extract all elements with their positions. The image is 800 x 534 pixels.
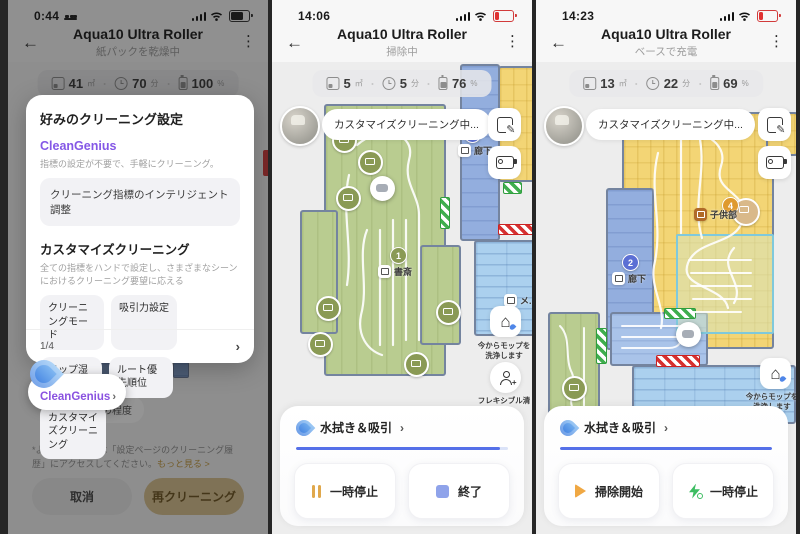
start-cleaning-button[interactable]: 掃除開始 [558, 463, 660, 519]
cleaning-stats: 13㎡ 22分 69% [569, 70, 763, 97]
cleangenius-chevron-icon: › [112, 391, 116, 403]
phone-cleaning: 2 廊下 1 書斎 メ... 14:06 ← Aqua10 Ultra [272, 0, 532, 534]
room-badge: 1 [390, 247, 407, 264]
pause-button[interactable]: 一時停止 [294, 463, 396, 519]
back-icon[interactable]: ← [550, 34, 567, 51]
selected-zone[interactable] [676, 234, 774, 334]
clock-time: 14:06 [298, 9, 330, 23]
clock-icon [383, 77, 396, 90]
cleangenius-description: 指標の設定が不要で、手軽にクリーニング。 [40, 157, 240, 170]
clock-icon [647, 77, 660, 90]
cleaning-status-banner[interactable]: カスタマイズクリーニング中... [586, 109, 755, 140]
cleaning-settings-dialog: 好みのクリーニング設定 CleanGenius 指標の設定が不要で、手軽にクリー… [26, 95, 254, 363]
cellular-icon [456, 12, 471, 21]
furniture-icon [562, 376, 587, 401]
battery-level-icon [710, 77, 719, 90]
custom-cleaning-description: 全ての指標をハンドで設定し、さまざまなシーンにおけるクリーニング要望に応える [40, 262, 240, 287]
dialog-title: 好みのクリーニング設定 [40, 109, 240, 128]
control-sheet: 水拭き＆吸引 › 掃除開始 一時停止 [544, 406, 788, 526]
avatar[interactable] [544, 106, 584, 146]
page-indicator: 1/4 [40, 341, 54, 352]
room-icon [458, 144, 471, 157]
room-label-kids: 子供部 [694, 208, 737, 221]
stat-battery: 69% [710, 76, 749, 91]
cellular-icon [720, 12, 735, 21]
stat-area: 5㎡ [326, 76, 362, 91]
camera-icon [766, 156, 784, 169]
battery-level-icon [439, 77, 448, 90]
avatar[interactable] [280, 106, 320, 146]
furniture-icon [316, 296, 341, 321]
area-icon [583, 77, 596, 90]
water-drop-icon [557, 416, 580, 439]
stat-time: 5分 [383, 76, 419, 91]
flexible-clean-button[interactable]: + [490, 362, 521, 393]
back-icon[interactable]: ← [286, 34, 303, 51]
camera-button[interactable] [488, 146, 521, 179]
pause-icon [312, 485, 321, 498]
mop-wash-button[interactable]: ⌂ [760, 358, 791, 389]
furniture-icon [336, 186, 361, 211]
stat-battery: 76% [439, 76, 478, 91]
action-buttons: 掃除開始 一時停止 [544, 450, 788, 519]
end-button[interactable]: 終了 [408, 463, 510, 519]
custom-cleaning-heading: カスタマイズクリーニング [40, 239, 240, 258]
play-icon [575, 484, 586, 498]
furniture-icon [308, 332, 333, 357]
room-icon [694, 208, 707, 221]
cleangenius-pill-label: CleanGenius [40, 391, 110, 403]
cleaning-status-banner[interactable]: カスタマイズクリーニング中... [322, 109, 491, 140]
intelligent-adjust-button[interactable]: クリーニング指標のインテリジェント調整 [40, 178, 240, 226]
mode-label: 水拭き＆吸引 [320, 419, 392, 436]
top-chrome: 14:06 ← Aqua10 Ultra Roller 掃除中 ⋮ [272, 0, 532, 62]
home-dock-icon: ⌂ [770, 365, 780, 382]
room-label-study: 書斎 [378, 265, 412, 278]
virtual-wall[interactable] [440, 197, 450, 229]
wifi-icon [738, 11, 751, 21]
camera-button[interactable] [758, 146, 791, 179]
device-status: 掃除中 [272, 44, 532, 59]
virtual-wall[interactable] [503, 182, 522, 194]
clock-time: 14:23 [562, 9, 594, 23]
map-edit-button[interactable] [758, 108, 791, 141]
device-title: Aqua10 Ultra Roller [536, 26, 796, 42]
robot-vacuum [676, 322, 701, 347]
mop-wash-label: 今からモップを洗浄します [468, 341, 532, 361]
status-bar: 14:23 [536, 0, 796, 23]
room-study-annex[interactable] [420, 245, 461, 345]
stop-icon [436, 485, 449, 498]
battery-low-icon [493, 10, 514, 22]
no-go-zone[interactable] [656, 355, 700, 367]
more-menu-icon[interactable]: ⋮ [505, 34, 520, 49]
phone-settings-dialog: 0:44 ← Aqua10 Ultra Roller 紙パックを乾燥中 ⋮ 41… [8, 0, 268, 534]
mode-row[interactable]: 水拭き＆吸引 › [544, 406, 788, 445]
status-bar: 14:06 [272, 0, 532, 23]
room-badge: 2 [622, 254, 639, 271]
mode-chevron-icon: › [664, 421, 668, 435]
map-edit-button[interactable] [488, 108, 521, 141]
cleangenius-heading: CleanGenius [40, 139, 240, 153]
stat-area: 13㎡ [583, 76, 626, 91]
person-plus-icon: + [499, 371, 513, 385]
room-icon [378, 265, 391, 278]
bolt-icon [688, 484, 701, 499]
app-header: ← Aqua10 Ultra Roller 掃除中 ⋮ [272, 26, 532, 59]
room-icon [612, 272, 625, 285]
mode-label: 水拭き＆吸引 [584, 419, 656, 436]
top-chrome: 14:23 ← Aqua10 Ultra Roller ベースで充電 ⋮ [536, 0, 796, 62]
control-sheet: 水拭き＆吸引 › 一時停止 終了 [280, 406, 524, 526]
water-drop-icon [293, 416, 316, 439]
chip-customized-cleaning[interactable]: カスタマイズクリーニング [40, 405, 106, 460]
mode-chevron-icon: › [400, 421, 404, 435]
home-dock-icon: ⌂ [500, 313, 510, 330]
wifi-icon [474, 11, 487, 21]
cleaning-stats: 5㎡ 5分 76% [312, 70, 491, 97]
screenshot-stage: 0:44 ← Aqua10 Ultra Roller 紙パックを乾燥中 ⋮ 41… [0, 0, 800, 534]
app-header: ← Aqua10 Ultra Roller ベースで充電 ⋮ [536, 26, 796, 59]
action-buttons: 一時停止 終了 [280, 450, 524, 519]
room-label-hallway: 廊下 [458, 144, 492, 157]
furniture-icon [436, 300, 461, 325]
phone-charging: 4 子供部 2 廊下 14:23 ← Aqua10 Ultra Roller ベ… [536, 0, 796, 534]
pause-button[interactable]: 一時停止 [672, 463, 774, 519]
mode-row[interactable]: 水拭き＆吸引 › [280, 406, 524, 445]
map-edit-icon [497, 117, 513, 133]
robot-vacuum [370, 176, 395, 201]
device-title: Aqua10 Ultra Roller [272, 26, 532, 42]
virtual-wall[interactable] [596, 328, 607, 364]
battery-low-icon [757, 10, 778, 22]
map-edit-icon [767, 117, 783, 133]
area-icon [326, 77, 339, 90]
dialog-pager: 1/4 › [26, 329, 254, 363]
virtual-wall[interactable] [664, 308, 696, 319]
furniture-icon [358, 150, 383, 175]
room-label-hallway: 廊下 [612, 272, 646, 285]
no-go-zone[interactable] [498, 224, 532, 235]
camera-icon [496, 156, 514, 169]
next-page-icon[interactable]: › [236, 339, 240, 354]
stat-time: 22分 [647, 76, 690, 91]
device-status: ベースで充電 [536, 44, 796, 59]
mop-wash-button[interactable]: ⌂ [490, 306, 521, 337]
more-menu-icon[interactable]: ⋮ [769, 34, 784, 49]
furniture-icon [404, 352, 429, 377]
